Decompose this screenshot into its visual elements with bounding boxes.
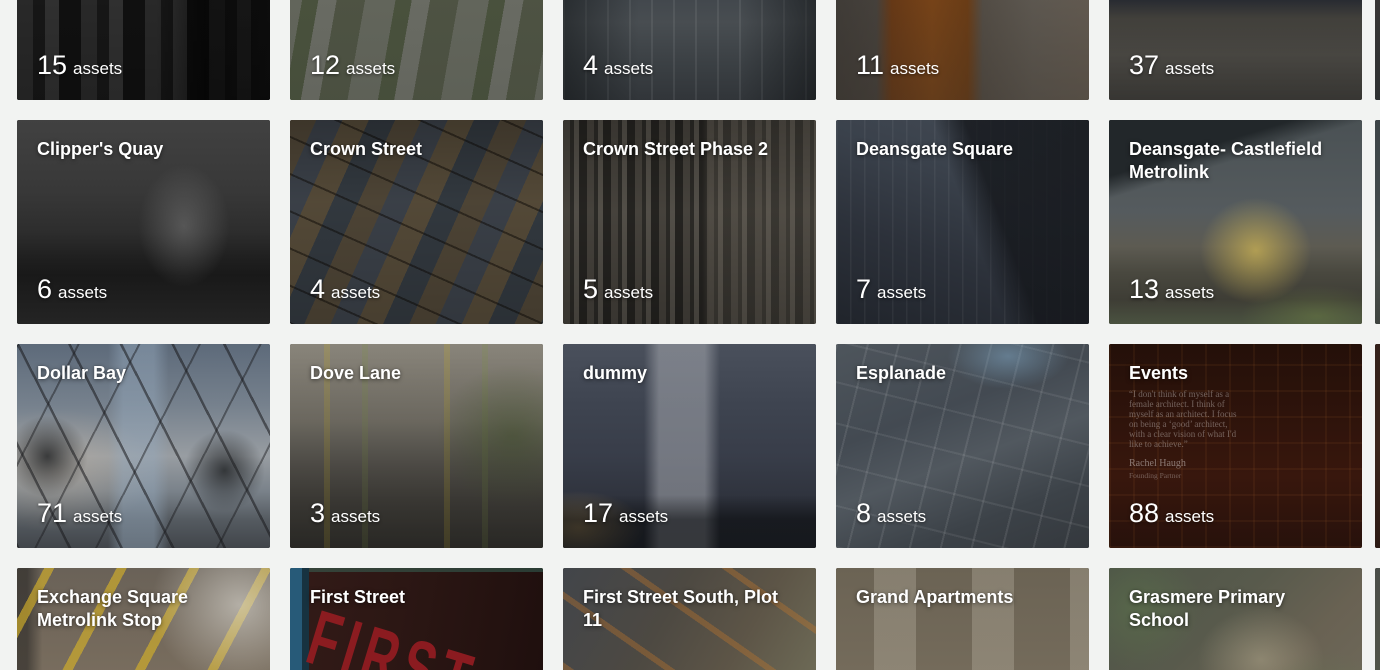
collection-card[interactable]: 11assets bbox=[836, 0, 1089, 100]
photo-embedded-quote bbox=[583, 165, 711, 174]
asset-count-number: 7 bbox=[856, 274, 871, 304]
asset-count: 7assets bbox=[856, 276, 926, 303]
collection-card-row: 15assets 12assets 4assets bbox=[0, 0, 1380, 100]
collection-card[interactable]: 12assets bbox=[290, 0, 543, 100]
collection-title: Dollar Bay bbox=[37, 362, 242, 385]
asset-count-number: 12 bbox=[310, 50, 340, 80]
asset-count-number: 4 bbox=[310, 274, 325, 304]
asset-count: 12assets bbox=[310, 52, 395, 79]
collection-card[interactable]: 15assets bbox=[17, 0, 270, 100]
photo-embedded-quote bbox=[856, 389, 984, 398]
next-column-partial-card bbox=[1375, 568, 1380, 670]
asset-count-label: assets bbox=[604, 283, 653, 302]
photo-embedded-quote bbox=[37, 389, 165, 398]
asset-count-label: assets bbox=[331, 507, 380, 526]
collections-grid: 15assets 12assets 4assets bbox=[0, 0, 1380, 670]
collection-card[interactable]: Grand Apartments bbox=[836, 568, 1089, 670]
asset-count-label: assets bbox=[331, 283, 380, 302]
asset-count: 5assets bbox=[583, 276, 653, 303]
asset-count-label: assets bbox=[877, 283, 926, 302]
collection-title: Deansgate Square bbox=[856, 138, 1061, 161]
collection-card-row: Dollar Bay 71assets Dove Lane 3assets du… bbox=[0, 344, 1380, 548]
asset-count: 11assets bbox=[856, 52, 939, 79]
asset-count: 6assets bbox=[37, 276, 107, 303]
asset-count-number: 11 bbox=[856, 50, 884, 80]
asset-count-number: 13 bbox=[1129, 274, 1159, 304]
collection-title: Crown Street bbox=[310, 138, 515, 161]
asset-count: 13assets bbox=[1129, 276, 1214, 303]
collection-card[interactable] bbox=[1375, 344, 1380, 548]
quote-text: “I don't think of myself as a female arc… bbox=[1129, 389, 1257, 449]
collection-title: First Street South, Plot 11 bbox=[583, 586, 788, 632]
asset-count: 88assets bbox=[1129, 500, 1214, 527]
photo-embedded-quote: “I don't think of myself as a female arc… bbox=[1129, 389, 1257, 480]
asset-count-number: 88 bbox=[1129, 498, 1159, 528]
asset-count-number: 3 bbox=[310, 498, 325, 528]
collection-card[interactable] bbox=[1375, 0, 1380, 100]
asset-count-number: 6 bbox=[37, 274, 52, 304]
asset-count-label: assets bbox=[619, 507, 668, 526]
asset-count-label: assets bbox=[1165, 283, 1214, 302]
collection-card[interactable] bbox=[1375, 120, 1380, 324]
collection-card[interactable]: Deansgate- Castlefield Metrolink 13asset… bbox=[1109, 120, 1362, 324]
collection-card[interactable]: Crown Street Phase 2 5assets bbox=[563, 120, 816, 324]
photo-embedded-quote bbox=[856, 165, 984, 174]
collection-card[interactable]: First Street South, Plot 11 bbox=[563, 568, 816, 670]
quote-author: Rachel Haugh bbox=[1129, 458, 1257, 469]
asset-count-number: 5 bbox=[583, 274, 598, 304]
collection-title: Grasmere Primary School bbox=[1129, 586, 1334, 632]
asset-count-label: assets bbox=[877, 507, 926, 526]
collection-title: Exchange Square Metrolink Stop bbox=[37, 586, 242, 632]
next-column-partial-card bbox=[1375, 120, 1380, 324]
collection-card[interactable]: Exchange Square Metrolink Stop bbox=[17, 568, 270, 670]
collection-card[interactable] bbox=[1375, 568, 1380, 670]
photo-embedded-quote bbox=[310, 389, 438, 398]
asset-count-label: assets bbox=[58, 283, 107, 302]
asset-count: 4assets bbox=[310, 276, 380, 303]
collection-card[interactable]: Esplanade 8assets bbox=[836, 344, 1089, 548]
asset-count: 8assets bbox=[856, 500, 926, 527]
asset-count-label: assets bbox=[73, 59, 122, 78]
collection-title: Esplanade bbox=[856, 362, 1061, 385]
photo-embedded-quote bbox=[310, 165, 438, 174]
city-street-towers-photo bbox=[563, 0, 816, 100]
asset-count-label: assets bbox=[73, 507, 122, 526]
collection-card[interactable]: Dollar Bay 71assets bbox=[17, 344, 270, 548]
photo-embedded-quote bbox=[856, 613, 984, 622]
collection-card[interactable]: Clipper's Quay 6assets bbox=[17, 120, 270, 324]
asset-count-number: 37 bbox=[1129, 50, 1159, 80]
collection-card-row: Clipper's Quay 6assets Crown Street 4ass… bbox=[0, 120, 1380, 324]
asset-count: 4assets bbox=[583, 52, 653, 79]
asset-count-number: 15 bbox=[37, 50, 67, 80]
collection-card-row: Exchange Square Metrolink Stop FIRST Fir… bbox=[0, 568, 1380, 670]
photo-embedded-quote bbox=[37, 165, 165, 174]
collection-card[interactable]: 37assets bbox=[1109, 0, 1362, 100]
asset-count-label: assets bbox=[604, 59, 653, 78]
photo-embedded-quote bbox=[310, 613, 438, 622]
collection-card[interactable]: FIRST First Street bbox=[290, 568, 543, 670]
asset-count-number: 71 bbox=[37, 498, 67, 528]
collection-title: Dove Lane bbox=[310, 362, 515, 385]
asset-count: 37assets bbox=[1129, 52, 1214, 79]
asset-count-label: assets bbox=[1165, 59, 1214, 78]
collection-title: Deansgate- Castlefield Metrolink bbox=[1129, 138, 1334, 184]
asset-count: 71assets bbox=[37, 500, 122, 527]
collection-card[interactable]: Dove Lane 3assets bbox=[290, 344, 543, 548]
next-column-partial-card bbox=[1375, 344, 1380, 548]
asset-count-label: assets bbox=[1165, 507, 1214, 526]
collection-card[interactable]: Grasmere Primary School bbox=[1109, 568, 1362, 670]
asset-count-number: 4 bbox=[583, 50, 598, 80]
collection-title: Crown Street Phase 2 bbox=[583, 138, 788, 161]
asset-count-number: 17 bbox=[583, 498, 613, 528]
quote-author-role: Founding Partner bbox=[1129, 471, 1257, 480]
photo-embedded-quote bbox=[583, 389, 711, 398]
collection-card[interactable]: Deansgate Square 7assets bbox=[836, 120, 1089, 324]
collection-title: dummy bbox=[583, 362, 788, 385]
collection-card[interactable]: “I don't think of myself as a female arc… bbox=[1109, 344, 1362, 548]
collection-card[interactable]: dummy 17assets bbox=[563, 344, 816, 548]
asset-count: 15assets bbox=[37, 52, 122, 79]
asset-count: 17assets bbox=[583, 500, 668, 527]
collection-title: First Street bbox=[310, 586, 515, 609]
collection-card[interactable]: 4assets bbox=[563, 0, 816, 100]
asset-count-label: assets bbox=[346, 59, 395, 78]
collection-title: Grand Apartments bbox=[856, 586, 1061, 609]
asset-count-label: assets bbox=[890, 59, 939, 78]
asset-count: 3assets bbox=[310, 500, 380, 527]
collection-title: Events bbox=[1129, 362, 1334, 385]
collection-card[interactable]: Crown Street 4assets bbox=[290, 120, 543, 324]
collection-title: Clipper's Quay bbox=[37, 138, 242, 161]
asset-count-number: 8 bbox=[856, 498, 871, 528]
next-column-partial-card bbox=[1375, 0, 1380, 100]
